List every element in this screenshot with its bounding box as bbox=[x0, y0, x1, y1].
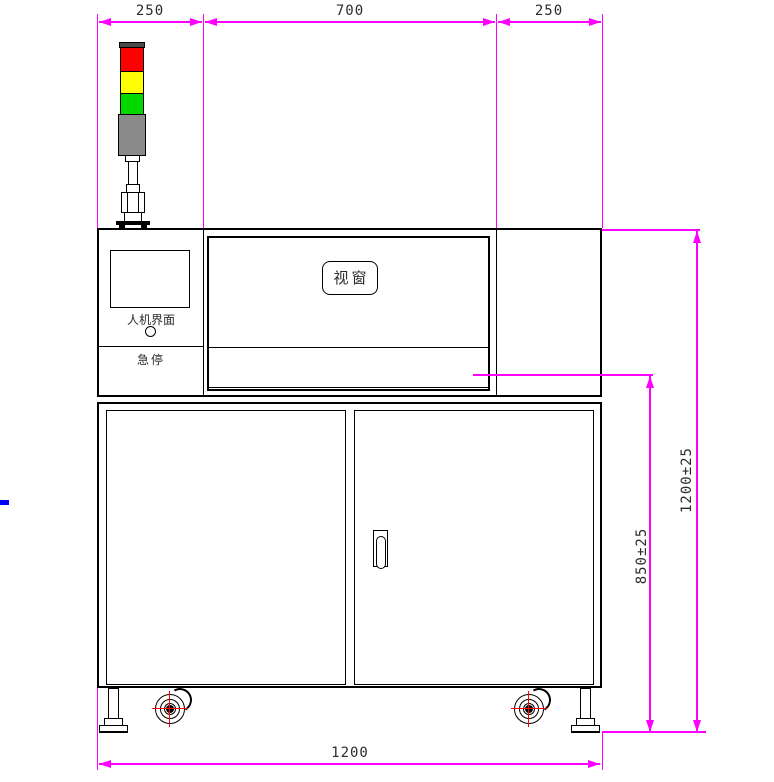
table-height-leader-line bbox=[473, 374, 653, 376]
head-divider-right bbox=[496, 230, 497, 395]
tower-body-gray bbox=[118, 114, 146, 156]
caster-crosshair bbox=[511, 708, 547, 709]
door-handle bbox=[376, 536, 386, 569]
caster-hub bbox=[166, 705, 174, 713]
extension-line bbox=[97, 14, 98, 228]
dimension-line-bottom bbox=[99, 763, 600, 765]
estop-label: 急停 bbox=[106, 351, 196, 368]
dim-top-left-label: 250 bbox=[120, 3, 180, 19]
window-divider bbox=[209, 347, 488, 348]
extension-line bbox=[602, 14, 603, 228]
dim-top-center-label: 700 bbox=[320, 3, 380, 19]
tower-light-red bbox=[120, 47, 144, 72]
extension-line bbox=[602, 229, 700, 231]
dim-right-overall-label: 1200±25 bbox=[679, 430, 695, 530]
extension-line bbox=[496, 14, 497, 228]
dim-top-right-label: 250 bbox=[519, 3, 579, 19]
dim-bottom-label: 1200 bbox=[310, 745, 390, 761]
hmi-panel-divider bbox=[98, 346, 204, 347]
tower-junction-line bbox=[127, 192, 128, 213]
head-divider-left bbox=[203, 230, 204, 395]
right-door bbox=[354, 410, 594, 685]
tower-junction-line bbox=[138, 192, 139, 213]
dimension-line-right-overall bbox=[696, 231, 698, 732]
caster-crosshair bbox=[152, 708, 188, 709]
dimension-line-top-left bbox=[99, 21, 202, 23]
tower-junction-box bbox=[121, 192, 145, 213]
tower-light-yellow bbox=[120, 71, 144, 94]
cad-drawing: 250 700 250 人机界面 急停 视窗 bbox=[0, 0, 774, 782]
caster-crosshair bbox=[169, 691, 170, 727]
hmi-button bbox=[145, 326, 156, 337]
stray-blue-mark bbox=[0, 500, 9, 505]
caster-hub bbox=[525, 705, 533, 713]
caster-crosshair bbox=[528, 691, 529, 727]
dimension-line-top-center bbox=[205, 21, 495, 23]
dimension-line-top-right bbox=[498, 21, 601, 23]
left-door bbox=[106, 410, 346, 685]
extension-line bbox=[97, 688, 98, 770]
tower-pole bbox=[128, 161, 138, 185]
window-frame bbox=[207, 236, 490, 391]
tower-light-green bbox=[120, 93, 144, 115]
dim-right-table-label: 850±25 bbox=[634, 506, 650, 606]
window-label: 视窗 bbox=[322, 261, 378, 295]
hmi-screen bbox=[110, 250, 190, 308]
extension-line bbox=[203, 14, 204, 228]
ground-reference-line bbox=[602, 731, 706, 733]
extension-line bbox=[602, 733, 603, 770]
window-inner-bottom-line bbox=[209, 387, 488, 388]
